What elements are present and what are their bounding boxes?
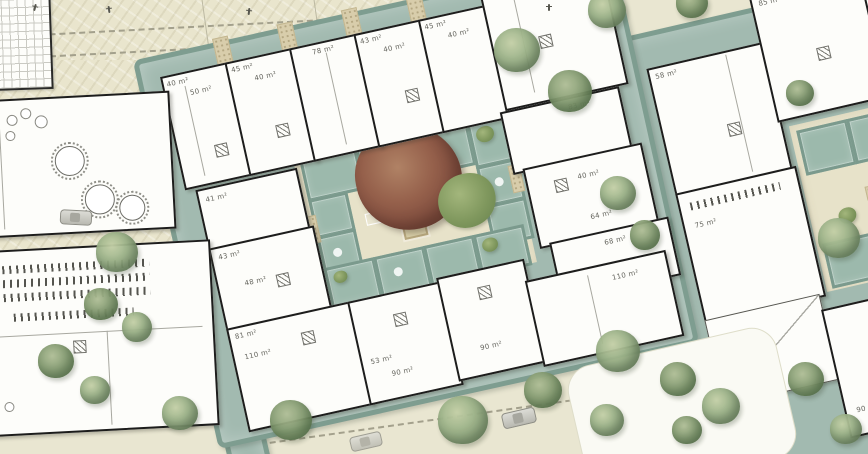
person-icon	[548, 4, 550, 11]
tree-icon	[600, 176, 636, 210]
interior-wall	[725, 55, 753, 172]
unit-area-label: 50 m²	[189, 84, 212, 97]
tree-icon	[548, 70, 592, 112]
stairs-icon	[214, 142, 230, 158]
unit-area-label: 90 m²	[479, 340, 502, 353]
unit-area-label: 110 m²	[611, 268, 639, 282]
unit-area-label: 81 m²	[234, 328, 257, 341]
unit-area-label: 40 m²	[577, 168, 600, 181]
tree-icon	[438, 396, 488, 444]
tree-icon	[660, 362, 696, 396]
stairs-icon	[73, 340, 87, 354]
garden-table-icon	[332, 247, 343, 258]
small-table-icon	[5, 131, 16, 142]
unit-area-label: 45 m²	[230, 62, 253, 75]
round-table-icon	[119, 194, 146, 221]
car-icon	[60, 209, 93, 226]
unit-area-label: 68 m²	[604, 234, 627, 247]
stairs-icon	[477, 285, 493, 301]
interior-wall	[0, 326, 203, 340]
unit-area-label: 90 m²	[856, 402, 868, 415]
person-icon	[108, 6, 111, 13]
unit-area-label: 90 m²	[391, 365, 414, 378]
tree-icon	[590, 404, 624, 436]
stairs-icon	[275, 123, 291, 139]
interior-wall	[107, 331, 113, 425]
tree-icon	[596, 330, 640, 372]
public-building	[0, 0, 54, 91]
stairs-icon	[276, 272, 292, 288]
unit-area-label: 78 m²	[311, 44, 334, 57]
seating-rows	[0, 287, 151, 305]
garden-table-icon	[494, 176, 505, 187]
interior-wall	[185, 86, 206, 176]
stairs-icon	[301, 330, 317, 346]
tree-icon	[494, 28, 540, 72]
stairs-icon	[393, 312, 409, 328]
unit-area-label: 53 m²	[370, 354, 393, 367]
tree-icon	[702, 388, 740, 424]
tree-icon	[270, 400, 312, 440]
unit-area-label: 110 m²	[244, 348, 272, 362]
tree-icon	[84, 288, 118, 320]
small-table-icon	[34, 115, 48, 129]
unit-area-label: 43 m²	[359, 33, 382, 46]
unit-area-label: 40 m²	[447, 27, 470, 40]
unit-area-label: 40 m²	[383, 41, 406, 54]
tree-icon	[818, 218, 860, 258]
tree-icon	[524, 372, 562, 408]
unit-area-label: 48 m²	[244, 275, 267, 288]
stairs-icon	[554, 178, 570, 194]
unit-area-label: 64 m²	[590, 209, 613, 222]
tree-icon	[162, 396, 198, 430]
tree-icon	[830, 414, 862, 444]
stairs-icon	[405, 88, 421, 104]
interior-wall	[326, 53, 347, 145]
interior-wall	[0, 106, 5, 230]
garden-table-icon	[393, 266, 404, 277]
unit-area-label: 85 m²	[758, 0, 781, 8]
unit-area-label: 40 m²	[254, 70, 277, 83]
round-table-icon	[54, 145, 86, 177]
stairs-icon	[538, 34, 554, 50]
site-plan-canvas: 58 m² 75 m² 85 m² 94 m² 90 m² 60 m²	[0, 0, 868, 454]
tree-icon	[38, 344, 74, 378]
tree-icon	[672, 416, 702, 444]
tree-icon	[788, 362, 824, 396]
small-table-icon	[6, 115, 18, 127]
tree-icon	[122, 312, 152, 342]
tree-icon	[96, 232, 138, 272]
stairs-icon	[816, 45, 832, 61]
unit-area-label: 43 m²	[218, 249, 241, 262]
unit-area-label: 41 m²	[205, 191, 228, 204]
tree-icon	[630, 220, 660, 250]
small-table-icon	[4, 402, 15, 413]
tree-icon	[786, 80, 814, 106]
unit-area-label: 45 m²	[424, 19, 447, 32]
tree-icon	[80, 376, 110, 404]
small-table-icon	[20, 108, 32, 120]
interior-wall	[587, 275, 603, 344]
